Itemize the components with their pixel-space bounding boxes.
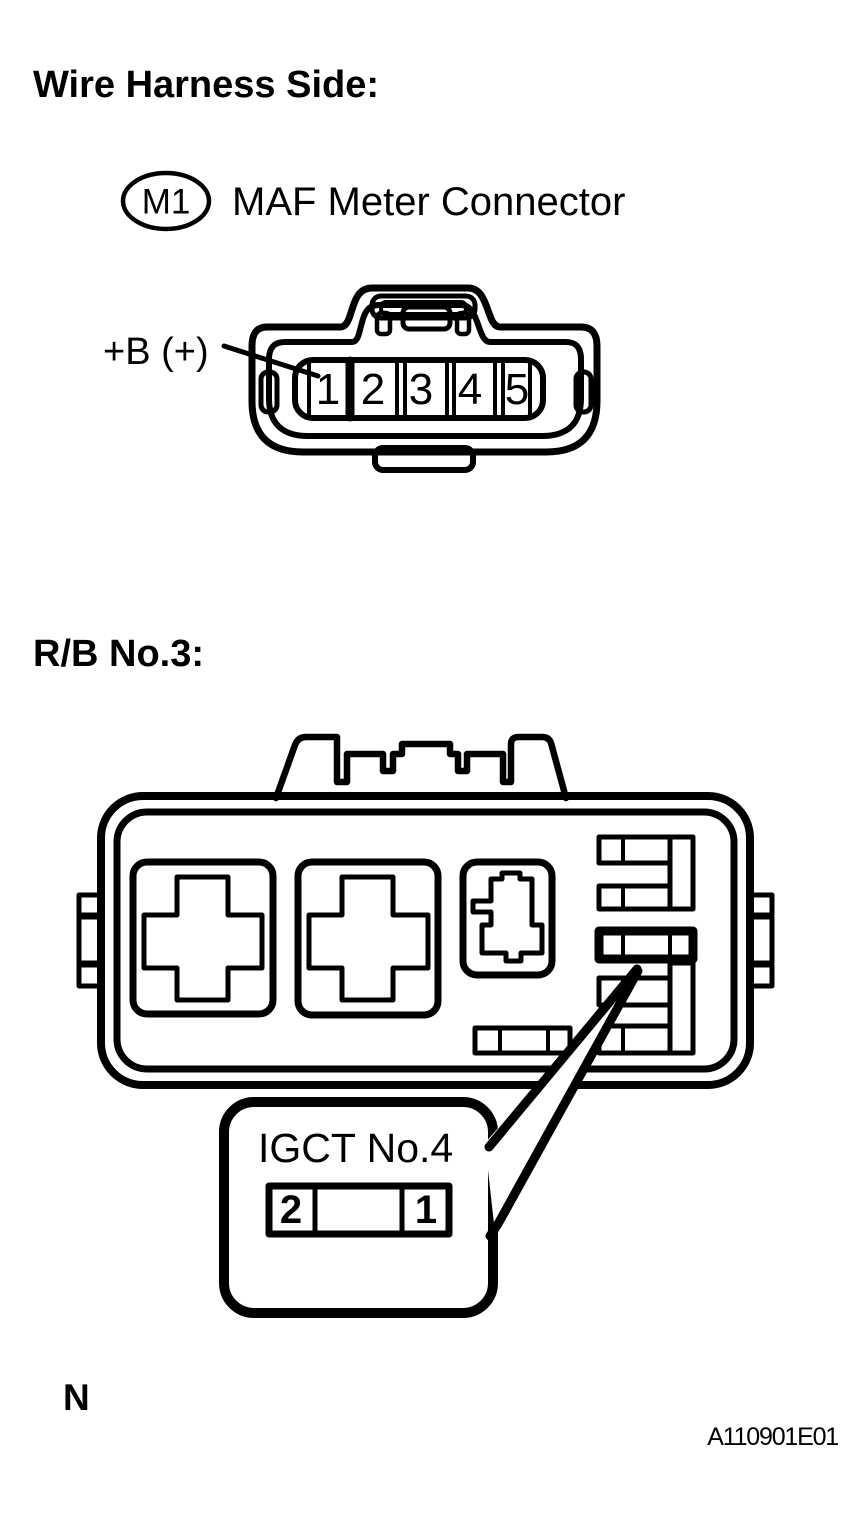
terminal-label: +B (+) — [103, 333, 209, 371]
pin-number-5: 5 — [505, 368, 529, 412]
fuse-slot-bottom — [475, 1028, 570, 1053]
fuse-slot-group-upper — [599, 837, 693, 909]
section2-heading: R/B No.3: — [33, 635, 204, 673]
relay-cavity-2-cross — [309, 877, 428, 1000]
service-manual-figure: Wire Harness Side: M1 MAF Meter Connecto… — [0, 0, 868, 1522]
callout-leader-upper-edge — [489, 969, 637, 1147]
relay-cavity-3-footprint — [473, 873, 542, 961]
callout-leader-lower-edge — [490, 971, 638, 1236]
figure-code: A110901E01 — [707, 1425, 838, 1450]
section1-heading: Wire Harness Side: — [33, 66, 379, 104]
relay-cavity-2 — [298, 862, 438, 1015]
pin-number-2: 2 — [361, 368, 385, 412]
callout-pin-2: 2 — [280, 1190, 302, 1230]
wiring-diagram-artwork — [0, 0, 868, 1522]
pin-number-1: 1 — [316, 368, 340, 412]
pin-number-3: 3 — [409, 368, 433, 412]
connector-name-label: MAF Meter Connector — [232, 182, 625, 222]
footnote-label: N — [63, 1379, 90, 1416]
rb-top-castellation — [276, 737, 566, 798]
connector-id-label: M1 — [142, 185, 191, 220]
callout-fuse-name: IGCT No.4 — [258, 1128, 453, 1169]
pin-number-4: 4 — [458, 368, 482, 412]
relay-cavity-1-cross — [144, 877, 262, 1000]
rb-no3-diagram — [79, 737, 772, 1085]
callout-pin-1: 1 — [415, 1190, 437, 1230]
igct-fuse-highlighted — [599, 931, 693, 959]
relay-cavity-1 — [133, 862, 273, 1014]
